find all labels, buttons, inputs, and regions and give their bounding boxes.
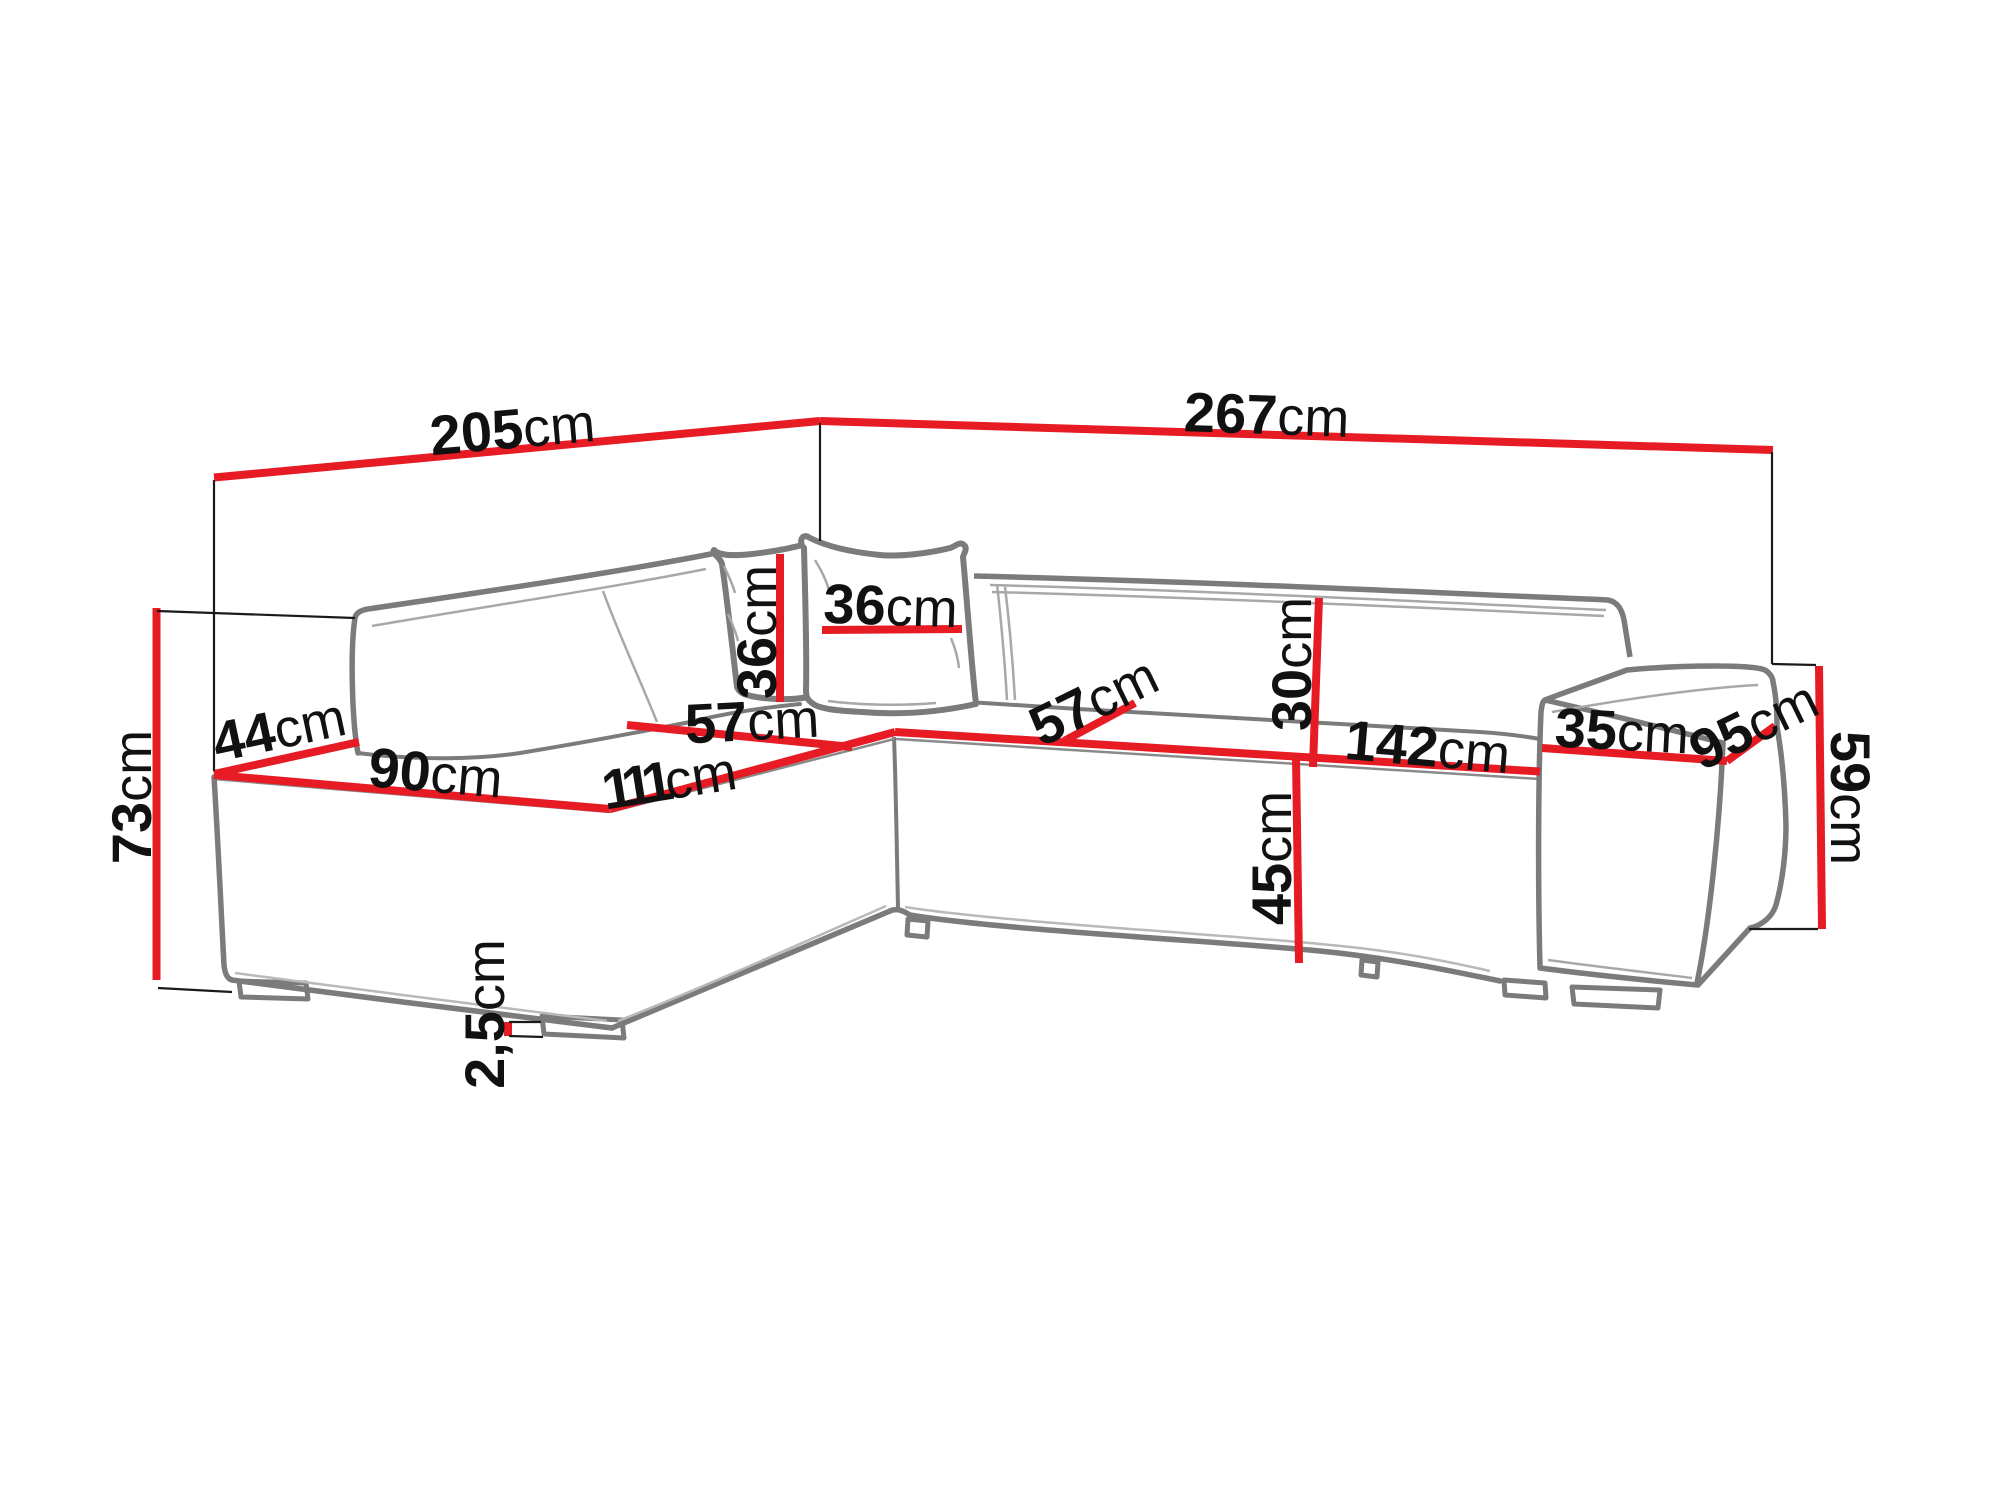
svg-text:35cm: 35cm bbox=[1553, 696, 1690, 766]
svg-text:2,5cm: 2,5cm bbox=[453, 939, 516, 1089]
svg-text:30cm: 30cm bbox=[1260, 597, 1323, 731]
svg-text:36cm: 36cm bbox=[822, 572, 958, 640]
svg-text:45cm: 45cm bbox=[1240, 791, 1303, 925]
svg-text:73cm: 73cm bbox=[100, 730, 163, 864]
svg-text:36cm: 36cm bbox=[725, 565, 788, 699]
svg-text:267cm: 267cm bbox=[1183, 380, 1351, 449]
svg-text:59cm: 59cm bbox=[1819, 731, 1882, 865]
